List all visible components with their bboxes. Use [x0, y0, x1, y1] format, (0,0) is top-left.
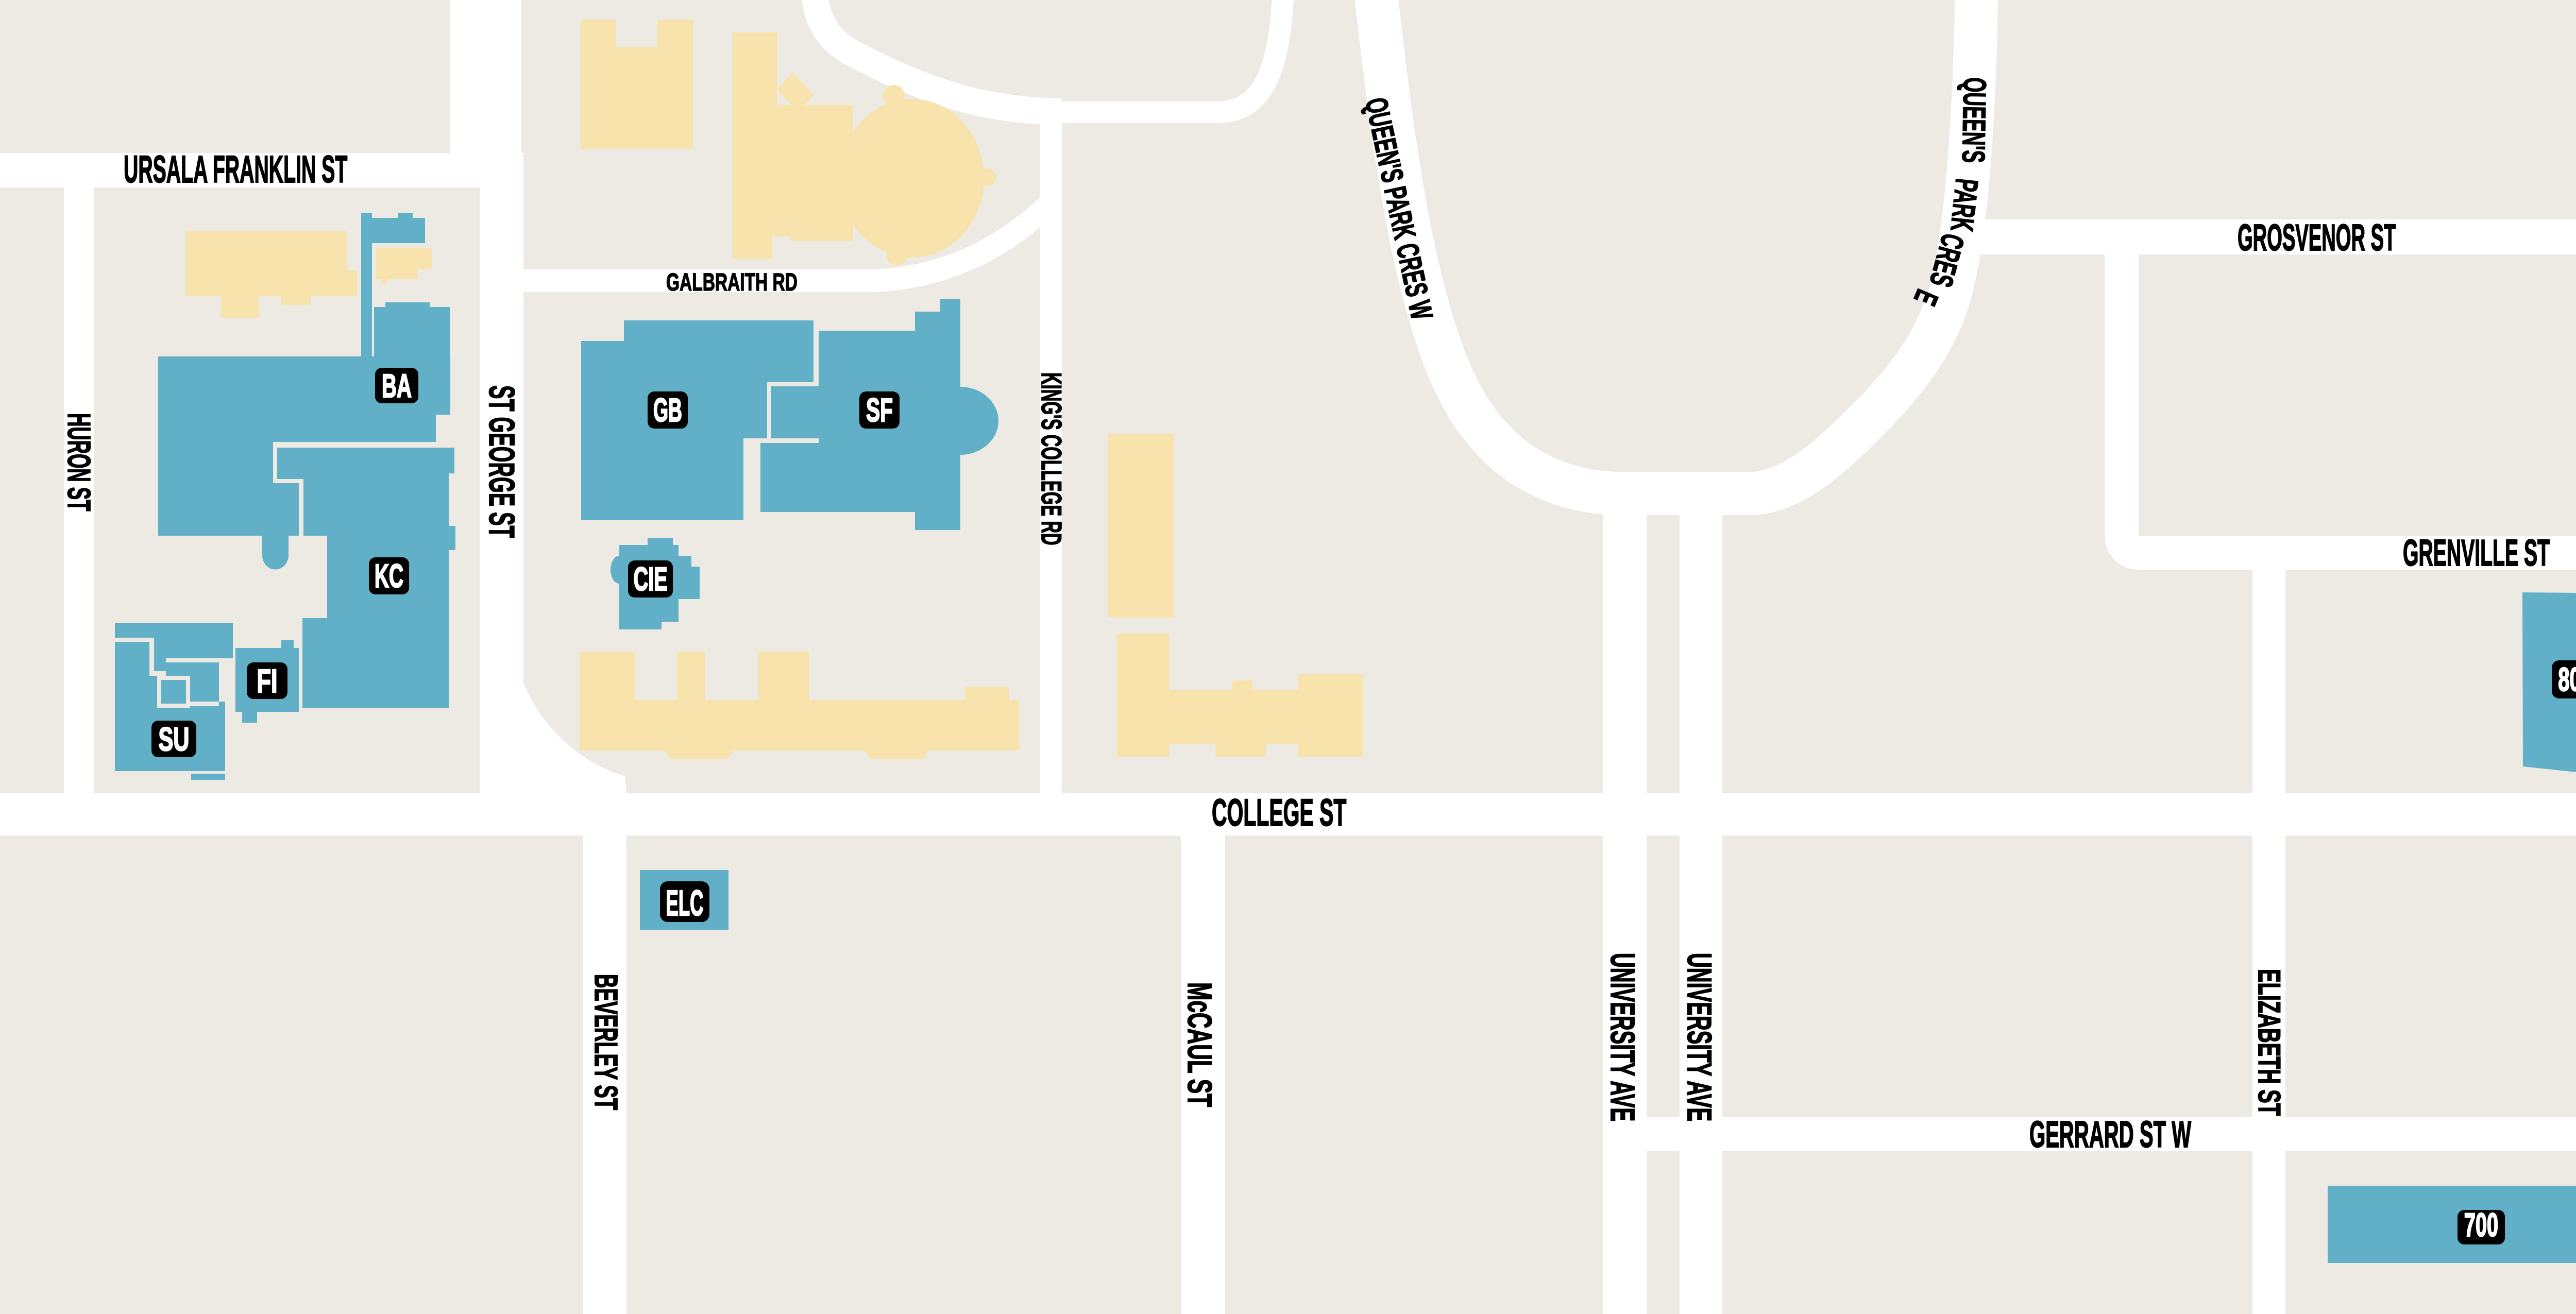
svg-text:UNIVERSITY AVE: UNIVERSITY AVE: [1603, 953, 1641, 1121]
svg-text:BA: BA: [382, 368, 412, 405]
svg-text:ST GEORGE ST: ST GEORGE ST: [481, 385, 521, 538]
svg-text:GALBRAITH RD: GALBRAITH RD: [666, 268, 798, 296]
svg-text:GB: GB: [653, 393, 682, 429]
svg-text:800: 800: [2558, 662, 2576, 698]
svg-text:GERRARD ST W: GERRARD ST W: [2029, 1114, 2191, 1155]
svg-text:McCAUL ST: McCAUL ST: [1181, 982, 1219, 1107]
svg-text:GROSVENOR ST: GROSVENOR ST: [2238, 217, 2396, 259]
svg-text:QUEEN'S: QUEEN'S: [1956, 77, 1993, 163]
svg-text:CIE: CIE: [633, 561, 667, 598]
svg-text:KING'S COLLEGE RD: KING'S COLLEGE RD: [1036, 372, 1067, 545]
svg-text:SF: SF: [866, 392, 893, 429]
svg-text:BEVERLEY ST: BEVERLEY ST: [588, 974, 624, 1110]
svg-text:SU: SU: [159, 721, 190, 758]
svg-text:KC: KC: [375, 558, 403, 594]
svg-text:ELC: ELC: [666, 883, 704, 923]
svg-text:HURON ST: HURON ST: [61, 413, 97, 511]
svg-text:700: 700: [2464, 1207, 2498, 1244]
svg-text:FI: FI: [257, 662, 278, 699]
svg-text:GRENVILLE ST: GRENVILLE ST: [2403, 533, 2550, 574]
svg-text:ELIZABETH ST: ELIZABETH ST: [2252, 969, 2286, 1116]
svg-text:UNIVERSITY AVE: UNIVERSITY AVE: [1680, 953, 1718, 1121]
svg-text:URSALA FRANKLIN ST: URSALA FRANKLIN ST: [124, 148, 347, 191]
svg-text:PARK: PARK: [1944, 177, 1985, 233]
svg-text:COLLEGE ST: COLLEGE ST: [1212, 791, 1346, 834]
